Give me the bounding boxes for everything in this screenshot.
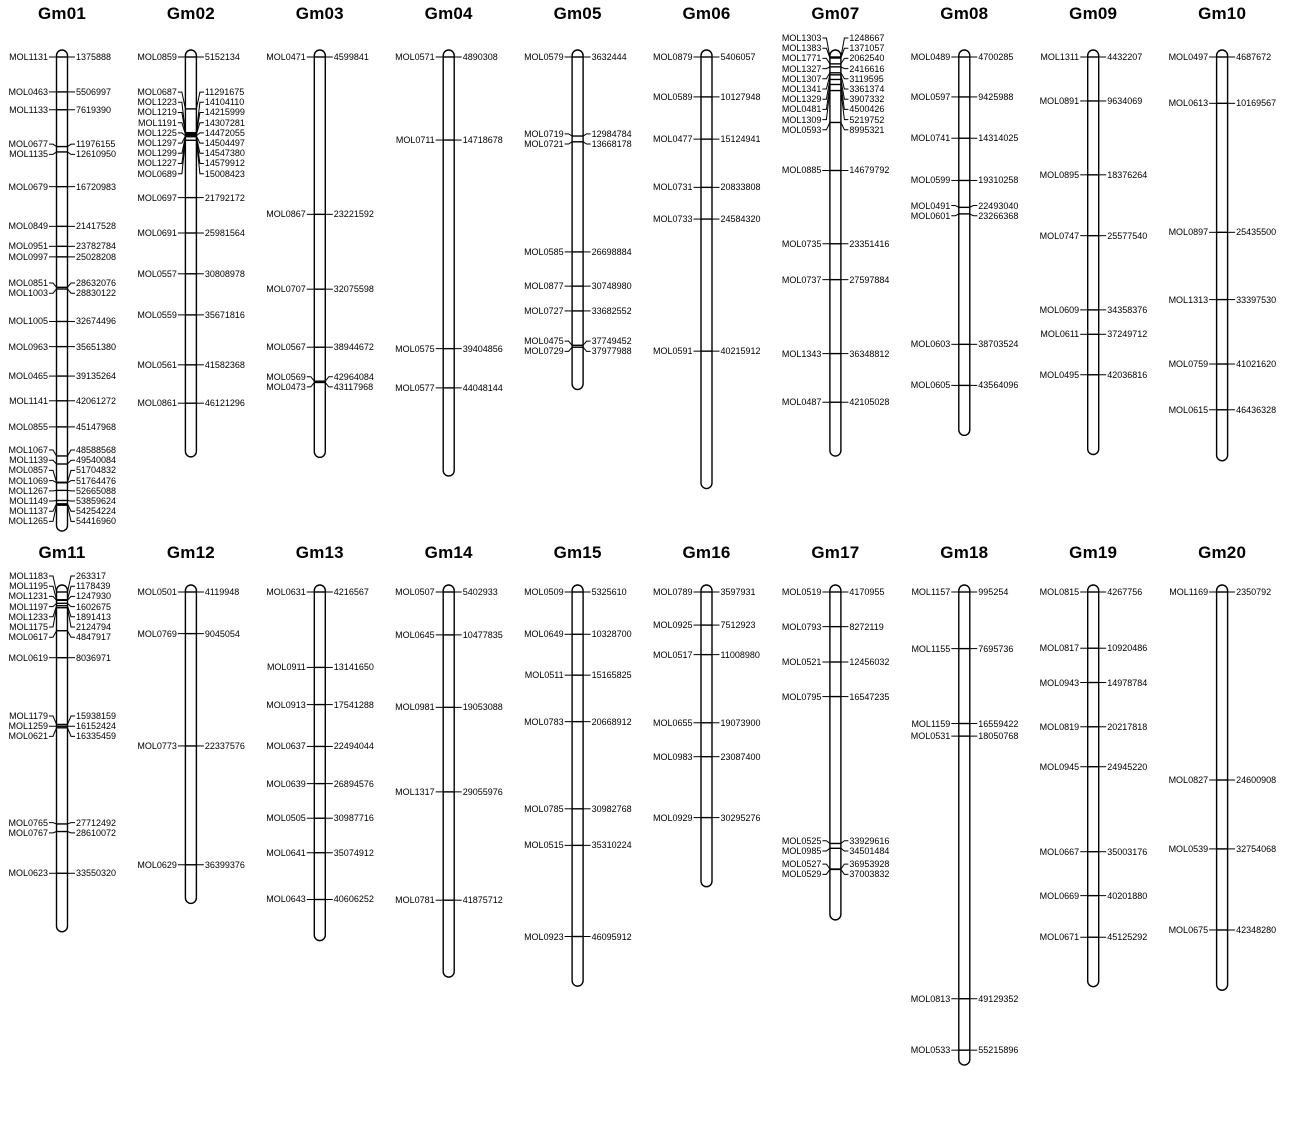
marker-name-label: MOL0985 xyxy=(771,846,821,856)
marker-name-label: MOL0895 xyxy=(1029,170,1079,180)
marker-position-label: 30808978 xyxy=(205,269,255,279)
marker-connector-left xyxy=(49,481,57,483)
marker-name-label: MOL0795 xyxy=(771,692,821,702)
marker-connector-left xyxy=(49,460,57,464)
marker-name-label: MOL1157 xyxy=(900,587,950,597)
marker-position-label: 21417528 xyxy=(76,221,126,231)
marker-connector-right xyxy=(68,576,76,592)
marker-position-label: 2062540 xyxy=(849,53,899,63)
marker-name-label: MOL0981 xyxy=(385,702,435,712)
marker-position-label: 24600908 xyxy=(1236,775,1286,785)
marker-name-label: MOL1149 xyxy=(0,496,48,506)
chromosome-bar xyxy=(314,50,325,457)
marker-name-label: MOL0475 xyxy=(514,336,564,346)
chromosome-map-canvas xyxy=(0,0,1299,1132)
marker-name-label: MOL0519 xyxy=(771,587,821,597)
marker-position-label: 5402933 xyxy=(463,587,513,597)
marker-connector-right xyxy=(68,283,76,287)
marker-connector-left xyxy=(49,823,57,824)
marker-name-label: MOL1317 xyxy=(385,787,435,797)
marker-position-label: 24945220 xyxy=(1107,762,1157,772)
marker-position-label: 36953928 xyxy=(849,859,899,869)
marker-name-label: MOL1303 xyxy=(771,33,821,43)
marker-position-label: 23266368 xyxy=(978,211,1028,221)
chromosome-title: Gm20 xyxy=(1177,543,1267,563)
marker-connector-right xyxy=(68,289,76,293)
marker-name-label: MOL0741 xyxy=(900,133,950,143)
marker-position-label: 38944672 xyxy=(334,342,384,352)
marker-name-label: MOL0697 xyxy=(127,193,177,203)
marker-position-label: 35003176 xyxy=(1107,847,1157,857)
marker-position-label: 14718678 xyxy=(463,135,513,145)
marker-position-label: 30295276 xyxy=(721,813,771,823)
marker-name-label: MOL0505 xyxy=(256,813,306,823)
marker-name-label: MOL0891 xyxy=(1029,96,1079,106)
marker-position-label: 28830122 xyxy=(76,288,126,298)
marker-position-label: 3597931 xyxy=(721,587,771,597)
marker-position-label: 12610950 xyxy=(76,149,126,159)
marker-name-label: MOL0885 xyxy=(771,165,821,175)
marker-name-label: MOL0561 xyxy=(127,360,177,370)
marker-connector-left xyxy=(49,576,57,592)
marker-name-label: MOL1327 xyxy=(771,64,821,74)
marker-name-label: MOL0859 xyxy=(127,52,177,62)
marker-name-label: MOL0559 xyxy=(127,310,177,320)
marker-position-label: 43564096 xyxy=(978,380,1028,390)
marker-position-label: 23351416 xyxy=(849,239,899,249)
marker-name-label: MOL0675 xyxy=(1158,925,1208,935)
marker-position-label: 40606252 xyxy=(334,894,384,904)
marker-name-label: MOL0599 xyxy=(900,175,950,185)
marker-position-label: 32754068 xyxy=(1236,844,1286,854)
marker-position-label: 16720983 xyxy=(76,182,126,192)
chromosome-title: Gm11 xyxy=(17,543,107,563)
marker-connector-left xyxy=(822,67,830,69)
marker-name-label: MOL1179 xyxy=(0,711,48,721)
marker-name-label: MOL0629 xyxy=(127,860,177,870)
marker-name-label: MOL0951 xyxy=(0,241,48,251)
marker-position-label: 10169567 xyxy=(1236,98,1286,108)
marker-name-label: MOL0691 xyxy=(127,228,177,238)
marker-name-label: MOL0735 xyxy=(771,239,821,249)
marker-connector-right xyxy=(68,823,76,824)
marker-name-label: MOL0501 xyxy=(127,587,177,597)
marker-position-label: 4599841 xyxy=(334,52,384,62)
marker-connector-left xyxy=(822,58,830,63)
marker-name-label: MOL0603 xyxy=(900,339,950,349)
marker-position-label: 33550320 xyxy=(76,868,126,878)
marker-connector-right xyxy=(325,382,333,386)
marker-name-label: MOL0925 xyxy=(643,620,693,630)
marker-name-label: MOL0817 xyxy=(1029,643,1079,653)
chromosome-bar xyxy=(572,50,583,389)
marker-position-label: 10127948 xyxy=(721,92,771,102)
marker-name-label: MOL0813 xyxy=(900,994,950,1004)
marker-name-label: MOL0591 xyxy=(643,346,693,356)
marker-name-label: MOL0515 xyxy=(514,840,564,850)
marker-position-label: 20833808 xyxy=(721,182,771,192)
marker-connector-right xyxy=(68,500,76,501)
marker-name-label: MOL0997 xyxy=(0,252,48,262)
marker-position-label: 15165825 xyxy=(592,670,642,680)
marker-name-label: MOL0577 xyxy=(385,383,435,393)
marker-connector-left xyxy=(49,832,57,833)
marker-connector-right xyxy=(841,848,849,851)
marker-position-label: 19073900 xyxy=(721,718,771,728)
marker-position-label: 30987716 xyxy=(334,813,384,823)
marker-name-label: MOL1313 xyxy=(1158,295,1208,305)
marker-position-label: 5325610 xyxy=(592,587,642,597)
marker-position-label: 1247930 xyxy=(76,591,126,601)
marker-connector-right xyxy=(196,92,204,109)
marker-position-label: 4216567 xyxy=(334,587,384,597)
marker-connector-right xyxy=(583,341,591,345)
marker-name-label: MOL0643 xyxy=(256,894,306,904)
marker-name-label: MOL1175 xyxy=(0,622,48,632)
marker-name-label: MOL0575 xyxy=(385,344,435,354)
marker-name-label: MOL0769 xyxy=(127,629,177,639)
marker-position-label: 27712492 xyxy=(76,818,126,828)
marker-position-label: 20217818 xyxy=(1107,722,1157,732)
marker-name-label: MOL0571 xyxy=(385,52,435,62)
marker-connector-right xyxy=(68,505,76,521)
marker-name-label: MOL0759 xyxy=(1158,359,1208,369)
marker-name-label: MOL0567 xyxy=(256,342,306,352)
marker-position-label: 7619390 xyxy=(76,105,126,115)
marker-name-label: MOL0923 xyxy=(514,932,564,942)
marker-position-label: 263317 xyxy=(76,571,126,581)
marker-position-label: 4267756 xyxy=(1107,587,1157,597)
marker-position-label: 42061272 xyxy=(76,396,126,406)
marker-position-label: 9045054 xyxy=(205,629,255,639)
marker-name-label: MOL1135 xyxy=(0,149,48,159)
marker-position-label: 36348812 xyxy=(849,349,899,359)
marker-connector-left xyxy=(49,289,57,293)
marker-name-label: MOL0619 xyxy=(0,653,48,663)
marker-position-label: 22493040 xyxy=(978,201,1028,211)
marker-name-label: MOL1133 xyxy=(0,105,48,115)
marker-name-label: MOL0487 xyxy=(771,397,821,407)
marker-name-label: MOL0929 xyxy=(643,813,693,823)
marker-name-label: MOL0851 xyxy=(0,278,48,288)
marker-name-label: MOL0963 xyxy=(0,342,48,352)
marker-position-label: 17541288 xyxy=(334,700,384,710)
marker-position-label: 26894576 xyxy=(334,779,384,789)
marker-position-label: 22337576 xyxy=(205,741,255,751)
chromosome-title: Gm04 xyxy=(404,4,494,24)
marker-name-label: MOL0773 xyxy=(127,741,177,751)
marker-connector-left xyxy=(307,382,315,386)
marker-position-label: 42964084 xyxy=(334,372,384,382)
marker-name-label: MOL0465 xyxy=(0,371,48,381)
marker-name-label: MOL0827 xyxy=(1158,775,1208,785)
marker-name-label: MOL1227 xyxy=(127,158,177,168)
marker-position-label: 40215912 xyxy=(721,346,771,356)
marker-connector-right xyxy=(68,631,76,637)
marker-position-label: 25028208 xyxy=(76,252,126,262)
marker-name-label: MOL1265 xyxy=(0,516,48,526)
marker-position-label: 37249712 xyxy=(1107,329,1157,339)
marker-name-label: MOL0677 xyxy=(0,139,48,149)
marker-name-label: MOL0617 xyxy=(0,632,48,642)
marker-name-label: MOL0491 xyxy=(900,201,950,211)
marker-name-label: MOL0913 xyxy=(256,700,306,710)
marker-name-label: MOL0793 xyxy=(771,622,821,632)
marker-position-label: 33397530 xyxy=(1236,295,1286,305)
chromosome-title: Gm13 xyxy=(275,543,365,563)
marker-connector-left xyxy=(49,144,57,146)
marker-name-label: MOL0481 xyxy=(771,104,821,114)
marker-position-label: 54254224 xyxy=(76,506,126,516)
marker-position-label: 4890308 xyxy=(463,52,513,62)
marker-connector-left xyxy=(49,716,57,724)
marker-connector-right xyxy=(841,841,849,844)
marker-position-label: 46095912 xyxy=(592,932,642,942)
marker-connector-right xyxy=(583,347,591,351)
marker-position-label: 16547235 xyxy=(849,692,899,702)
marker-connector-right xyxy=(970,214,978,216)
marker-name-label: MOL0511 xyxy=(514,670,564,680)
marker-name-label: MOL0649 xyxy=(514,629,564,639)
marker-position-label: 16152424 xyxy=(76,721,126,731)
marker-position-label: 14314025 xyxy=(978,133,1028,143)
chromosome-bar xyxy=(443,50,454,476)
marker-position-label: 18376264 xyxy=(1107,170,1157,180)
marker-name-label: MOL0509 xyxy=(514,587,564,597)
marker-position-label: 15124941 xyxy=(721,134,771,144)
marker-position-label: 49129352 xyxy=(978,994,1028,1004)
marker-position-label: 37749452 xyxy=(592,336,642,346)
marker-connector-left xyxy=(822,869,830,874)
marker-name-label: MOL0943 xyxy=(1029,678,1079,688)
marker-position-label: 14215999 xyxy=(205,107,255,117)
marker-name-label: MOL0637 xyxy=(256,741,306,751)
marker-position-label: 11008980 xyxy=(721,650,771,660)
marker-connector-left xyxy=(49,283,57,287)
marker-name-label: MOL0721 xyxy=(514,139,564,149)
marker-name-label: MOL1223 xyxy=(127,97,177,107)
marker-name-label: MOL0679 xyxy=(0,182,48,192)
marker-name-label: MOL0747 xyxy=(1029,231,1079,241)
marker-name-label: MOL0615 xyxy=(1158,405,1208,415)
marker-position-label: 14307281 xyxy=(205,118,255,128)
marker-position-label: 1248667 xyxy=(849,33,899,43)
marker-connector-right xyxy=(841,58,849,63)
marker-connector-left xyxy=(822,848,830,851)
marker-name-label: MOL1297 xyxy=(127,138,177,148)
marker-name-label: MOL0911 xyxy=(256,662,306,672)
marker-connector-left xyxy=(822,841,830,844)
chromosome-title: Gm03 xyxy=(275,4,365,24)
marker-position-label: 32674496 xyxy=(76,316,126,326)
marker-connector-right xyxy=(68,832,76,833)
marker-name-label: MOL1233 xyxy=(0,612,48,622)
chromosome-title: Gm18 xyxy=(919,543,1009,563)
marker-name-label: MOL0667 xyxy=(1029,847,1079,857)
marker-position-label: 46436328 xyxy=(1236,405,1286,415)
marker-connector-left xyxy=(565,142,573,144)
marker-name-label: MOL0855 xyxy=(0,422,48,432)
chromosome-bar xyxy=(701,585,712,887)
marker-name-label: MOL1003 xyxy=(0,288,48,298)
marker-position-label: 5406057 xyxy=(721,52,771,62)
marker-name-label: MOL1067 xyxy=(0,445,48,455)
marker-name-label: MOL0507 xyxy=(385,587,435,597)
marker-position-label: 4500426 xyxy=(849,104,899,114)
marker-position-label: 995254 xyxy=(978,587,1028,597)
marker-position-label: 26698884 xyxy=(592,247,642,257)
marker-position-label: 41582368 xyxy=(205,360,255,370)
marker-position-label: 12984784 xyxy=(592,129,642,139)
marker-name-label: MOL1231 xyxy=(0,591,48,601)
marker-name-label: MOL1131 xyxy=(0,52,48,62)
chromosome-map: Gm01MOL11311375888MOL04635506997MOL11337… xyxy=(0,0,1299,1132)
marker-position-label: 2350792 xyxy=(1236,587,1286,597)
marker-name-label: MOL0601 xyxy=(900,211,950,221)
marker-connector-right xyxy=(68,152,76,154)
marker-name-label: MOL1309 xyxy=(771,115,821,125)
marker-name-label: MOL0655 xyxy=(643,718,693,728)
marker-position-label: 13668178 xyxy=(592,139,642,149)
marker-name-label: MOL0879 xyxy=(643,52,693,62)
chromosome-title: Gm06 xyxy=(662,4,752,24)
chromosome-bar xyxy=(1088,50,1099,454)
marker-name-label: MOL0645 xyxy=(385,630,435,640)
marker-name-label: MOL0613 xyxy=(1158,98,1208,108)
marker-connector-right xyxy=(68,716,76,724)
marker-connector-right xyxy=(583,142,591,144)
chromosome-title: Gm05 xyxy=(533,4,623,24)
marker-position-label: 3119595 xyxy=(849,74,899,84)
chromosome-bar xyxy=(959,50,970,435)
marker-name-label: MOL0477 xyxy=(643,134,693,144)
marker-name-label: MOL0781 xyxy=(385,895,435,905)
marker-position-label: 14978784 xyxy=(1107,678,1157,688)
marker-position-label: 19310258 xyxy=(978,175,1028,185)
marker-connector-left xyxy=(49,505,57,521)
marker-connector-right xyxy=(841,122,849,129)
marker-position-label: 37977988 xyxy=(592,346,642,356)
marker-connector-right xyxy=(68,450,76,456)
marker-position-label: 15938159 xyxy=(76,711,126,721)
chromosome-bar xyxy=(185,585,196,903)
marker-position-label: 9634069 xyxy=(1107,96,1157,106)
chromosome-title: Gm19 xyxy=(1048,543,1138,563)
marker-name-label: MOL1195 xyxy=(0,581,48,591)
marker-position-label: 23221592 xyxy=(334,209,384,219)
marker-name-label: MOL1771 xyxy=(771,53,821,63)
marker-name-label: MOL0471 xyxy=(256,52,306,62)
marker-name-label: MOL1329 xyxy=(771,94,821,104)
marker-position-label: 51704832 xyxy=(76,465,126,475)
marker-name-label: MOL0609 xyxy=(1029,305,1079,315)
marker-position-label: 39404856 xyxy=(463,344,513,354)
marker-position-label: 44048144 xyxy=(463,383,513,393)
marker-name-label: MOL1183 xyxy=(0,571,48,581)
marker-connector-right xyxy=(68,144,76,146)
marker-name-label: MOL0605 xyxy=(900,380,950,390)
marker-name-label: MOL0711 xyxy=(385,135,435,145)
marker-name-label: MOL0815 xyxy=(1029,587,1079,597)
marker-connector-right xyxy=(583,134,591,136)
marker-connector-left xyxy=(49,152,57,154)
marker-name-label: MOL0611 xyxy=(1029,329,1079,339)
chromosome-bar xyxy=(57,585,68,932)
marker-connector-left xyxy=(178,133,186,136)
marker-connector-left xyxy=(49,728,57,737)
chromosome-bar xyxy=(1217,50,1228,461)
marker-position-label: 8272119 xyxy=(849,622,899,632)
marker-position-label: 46121296 xyxy=(205,398,255,408)
marker-position-label: 55215896 xyxy=(978,1045,1028,1055)
marker-position-label: 30748980 xyxy=(592,281,642,291)
marker-position-label: 18050768 xyxy=(978,731,1028,741)
marker-name-label: MOL1343 xyxy=(771,349,821,359)
marker-position-label: 14472055 xyxy=(205,128,255,138)
marker-position-label: 48588568 xyxy=(76,445,126,455)
marker-name-label: MOL0727 xyxy=(514,306,564,316)
marker-position-label: 3632444 xyxy=(592,52,642,62)
marker-name-label: MOL0687 xyxy=(127,87,177,97)
marker-name-label: MOL1197 xyxy=(0,602,48,612)
marker-name-label: MOL0857 xyxy=(0,465,48,475)
marker-position-label: 16559422 xyxy=(978,719,1028,729)
marker-position-label: 32075598 xyxy=(334,284,384,294)
marker-position-label: 30982768 xyxy=(592,804,642,814)
marker-position-label: 8036971 xyxy=(76,653,126,663)
marker-name-label: MOL0557 xyxy=(127,269,177,279)
marker-name-label: MOL0531 xyxy=(900,731,950,741)
marker-connector-right xyxy=(196,133,204,136)
marker-position-label: 45125292 xyxy=(1107,932,1157,942)
marker-name-label: MOL0867 xyxy=(256,209,306,219)
chromosome-title: Gm16 xyxy=(662,543,752,563)
marker-position-label: 14547380 xyxy=(205,148,255,158)
marker-connector-left xyxy=(49,603,57,606)
marker-name-label: MOL0897 xyxy=(1158,227,1208,237)
marker-name-label: MOL0639 xyxy=(256,779,306,789)
marker-position-label: 14679792 xyxy=(849,165,899,175)
marker-connector-left xyxy=(49,450,57,456)
marker-position-label: 10920486 xyxy=(1107,643,1157,653)
chromosome-title: Gm12 xyxy=(146,543,236,563)
marker-connector-right xyxy=(841,864,849,869)
marker-position-label: 5152134 xyxy=(205,52,255,62)
marker-name-label: MOL0593 xyxy=(771,125,821,135)
marker-name-label: MOL0669 xyxy=(1029,891,1079,901)
marker-name-label: MOL0585 xyxy=(514,247,564,257)
marker-connector-right xyxy=(68,728,76,737)
marker-name-label: MOL0641 xyxy=(256,848,306,858)
marker-position-label: 1891413 xyxy=(76,612,126,622)
marker-position-label: 4700285 xyxy=(978,52,1028,62)
marker-position-label: 28632076 xyxy=(76,278,126,288)
marker-name-label: MOL0521 xyxy=(771,657,821,667)
chromosome-title: Gm08 xyxy=(919,4,1009,24)
chromosome-title: Gm02 xyxy=(146,4,236,24)
marker-name-label: MOL0579 xyxy=(514,52,564,62)
chromosome-title: Gm07 xyxy=(790,4,880,24)
marker-name-label: MOL0539 xyxy=(1158,844,1208,854)
marker-name-label: MOL1259 xyxy=(0,721,48,731)
marker-position-label: 11976155 xyxy=(76,139,126,149)
marker-name-label: MOL0631 xyxy=(256,587,306,597)
marker-connector-right xyxy=(325,377,333,381)
marker-position-label: 34358376 xyxy=(1107,305,1157,315)
marker-name-label: MOL0529 xyxy=(771,869,821,879)
marker-name-label: MOL0623 xyxy=(0,868,48,878)
marker-name-label: MOL1225 xyxy=(127,128,177,138)
